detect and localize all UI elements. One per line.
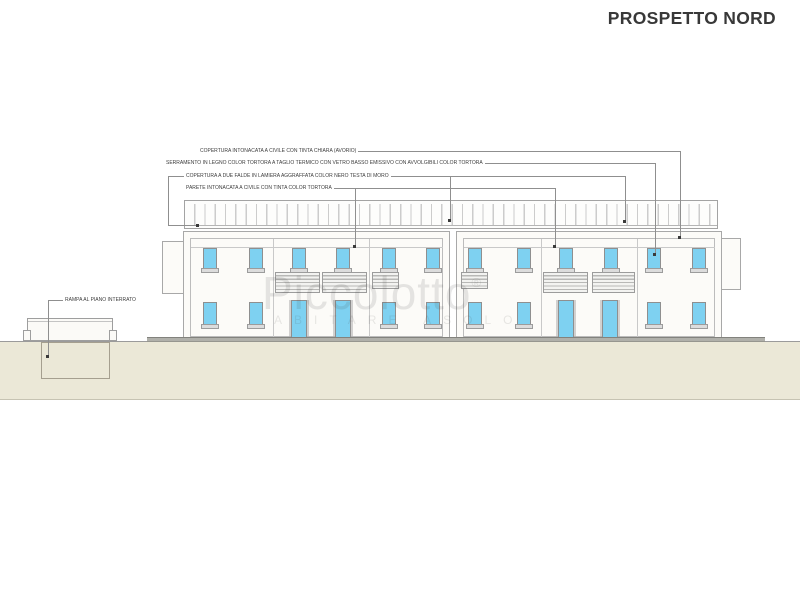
annotation-wall-plaster: PARETE INTONACATA A CIVILE CON TINTA COL… <box>184 186 334 191</box>
annotation-roof-plaster: COPERTURA INTONACATA A CIVILE CON TINTA … <box>198 149 358 154</box>
window <box>292 248 306 271</box>
roller-shutter-hatch <box>543 272 588 293</box>
sidewalk-strip <box>147 337 765 342</box>
annotation-ramp: RAMPA AL PIANO INTERRATO <box>63 298 138 303</box>
roller-shutter-hatch <box>592 272 635 293</box>
window <box>336 248 350 271</box>
roller-shutter-hatch <box>461 272 488 289</box>
window <box>249 302 263 327</box>
roller-shutter-hatch <box>275 272 320 293</box>
window <box>468 248 482 271</box>
glazed-door <box>335 300 351 339</box>
window <box>517 248 531 271</box>
window <box>559 248 573 271</box>
window <box>203 302 217 327</box>
glazed-door <box>558 300 574 339</box>
window <box>249 248 263 271</box>
facade-partition-line <box>637 239 638 338</box>
facade-partition-line <box>541 239 542 338</box>
roller-shutter-hatch <box>322 272 367 293</box>
glazed-door <box>602 300 618 339</box>
window <box>647 248 661 271</box>
window <box>426 302 440 327</box>
annotation-window-frames: SERRAMENTO IN LEGNO COLOR TORTORA A TAGL… <box>164 161 485 166</box>
window <box>647 302 661 327</box>
window <box>692 248 706 271</box>
window <box>692 302 706 327</box>
window <box>517 302 531 327</box>
roller-shutter-hatch <box>372 272 399 289</box>
elevation-drawing-page: COPERTURA INTONACATA A CIVILE CON TINTA … <box>0 0 800 600</box>
window <box>468 302 482 327</box>
window <box>382 248 396 271</box>
window <box>203 248 217 271</box>
annotation-metal-roof: COPERTURA A DUE FALDE IN LAMIERA AGGRAFF… <box>184 174 391 179</box>
window <box>426 248 440 271</box>
facade-partition-line <box>273 239 274 338</box>
facade-partition-line <box>464 247 715 248</box>
facade-partition-line <box>191 247 443 248</box>
glazed-door <box>291 300 307 339</box>
facade-partition-line <box>369 239 370 338</box>
window <box>382 302 396 327</box>
window <box>604 248 618 271</box>
